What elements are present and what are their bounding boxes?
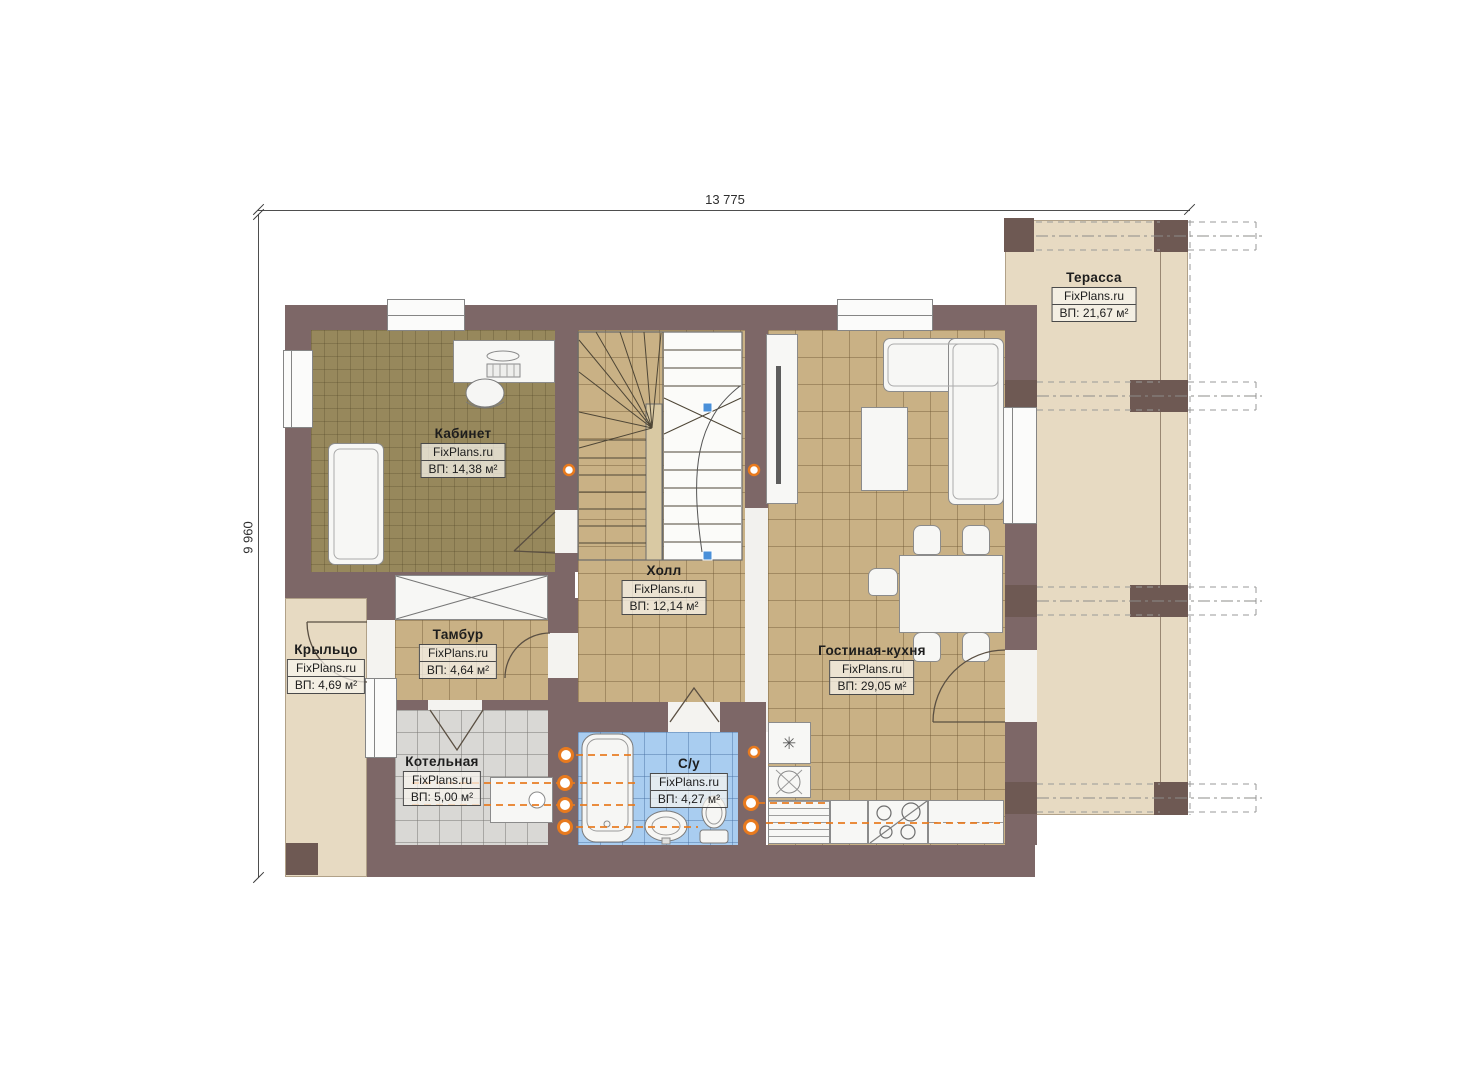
room-label-vestibule: Тамбур FixPlans.ruВП: 4,64 м² — [419, 627, 497, 679]
cooktop — [868, 800, 928, 844]
terrace-inner-line — [1160, 220, 1161, 815]
dining-table — [899, 555, 1003, 633]
window-living-east — [1003, 407, 1037, 524]
dining-chair — [962, 632, 990, 662]
room-name: Котельная — [403, 754, 481, 769]
terrace-column — [1130, 380, 1188, 412]
porch-column — [286, 843, 318, 875]
room-name: Кабинет — [421, 426, 506, 441]
room-area: ВП: 12,14 м² — [623, 597, 706, 614]
room-name: Тамбур — [419, 627, 497, 642]
brand-watermark: FixPlans.ru — [420, 645, 496, 661]
window-living-top — [837, 299, 933, 331]
window-office-top — [387, 299, 465, 331]
brand-watermark: FixPlans.ru — [651, 774, 727, 790]
door-gap-bathroom — [668, 702, 720, 732]
kitchen-counter — [928, 800, 1004, 844]
room-name: С/у — [650, 756, 728, 771]
room-area: ВП: 5,00 м² — [404, 788, 480, 805]
brand-watermark: FixPlans.ru — [1053, 288, 1136, 304]
brand-watermark: FixPlans.ru — [623, 581, 706, 597]
wall-hall-living — [745, 305, 768, 508]
room-area: ВП: 21,67 м² — [1053, 304, 1136, 321]
room-label-bathroom: С/у FixPlans.ruВП: 4,27 м² — [650, 756, 728, 808]
terrace-column — [1130, 585, 1188, 617]
sofa-right — [948, 338, 1004, 505]
room-area: ВП: 4,27 м² — [651, 790, 727, 807]
dining-chair — [868, 568, 898, 596]
terrace-column — [1154, 220, 1188, 252]
room-name: Терасса — [1052, 270, 1137, 285]
hall-floor — [578, 330, 745, 702]
brand-watermark: FixPlans.ru — [288, 660, 364, 676]
room-label-office: Кабинет FixPlans.ruВП: 14,38 м² — [421, 426, 506, 478]
wardrobe — [395, 575, 548, 620]
room-label-hall: Холл FixPlans.ruВП: 12,14 м² — [622, 563, 707, 615]
room-label-terrace: Терасса FixPlans.ruВП: 21,67 м² — [1052, 270, 1137, 322]
window-office-left — [283, 350, 313, 428]
window-porch — [365, 678, 397, 758]
terrace-column — [1004, 218, 1034, 252]
room-label-living-kitchen: Гостиная-кухня FixPlans.ruВП: 29,05 м² — [818, 643, 926, 695]
wall-bathroom-north — [548, 702, 766, 732]
room-label-boiler: Котельная FixPlans.ruВП: 5,00 м² — [403, 754, 481, 806]
door-gap-entrance — [367, 620, 395, 682]
room-name: Холл — [622, 563, 707, 578]
dining-chair — [913, 525, 941, 555]
brand-watermark: FixPlans.ru — [422, 444, 505, 460]
porch-floor — [285, 598, 367, 877]
room-area: ВП: 29,05 м² — [831, 677, 914, 694]
coffee-table — [861, 407, 908, 491]
dimension-line-left — [258, 214, 259, 878]
wall-bathroom-east — [738, 732, 766, 845]
boiler-unit — [490, 777, 553, 823]
kitchen-counter — [830, 800, 868, 844]
wall-bottom — [367, 845, 1035, 877]
dimension-width-label: 13 775 — [660, 192, 790, 207]
room-name: Крыльцо — [287, 642, 365, 657]
door-gap-vestibule-hall — [548, 633, 578, 678]
brand-watermark: FixPlans.ru — [831, 661, 914, 677]
door-gap-office — [555, 510, 578, 553]
fridge-snowflake-icon: ✳ — [782, 735, 796, 752]
room-label-porch: Крыльцо FixPlans.ruВП: 4,69 м² — [287, 642, 365, 694]
room-name: Гостиная-кухня — [818, 643, 926, 658]
kitchen-drawers — [768, 800, 830, 844]
terrace-column — [1005, 585, 1037, 617]
door-gap-terrace — [1005, 650, 1037, 722]
terrace-column — [1005, 782, 1037, 814]
room-area: ВП: 14,38 м² — [422, 460, 505, 477]
brand-watermark: FixPlans.ru — [404, 772, 480, 788]
office-sofa — [328, 443, 384, 565]
desk — [453, 340, 555, 383]
door-gap-vestibule-boiler — [428, 700, 482, 710]
kitchen-sink-unit — [768, 766, 811, 798]
dining-chair — [962, 525, 990, 555]
terrace-column — [1154, 782, 1188, 815]
room-area: ВП: 4,64 м² — [420, 661, 496, 678]
dimension-line-top — [258, 210, 1190, 211]
hall-living-passage — [745, 508, 768, 732]
dimension-height-label: 9 960 — [241, 508, 256, 568]
floor-plan: ✳ Кабинет FixPlans.ruВП: 14,38 м² Холл F… — [0, 0, 1474, 1080]
tv-stand — [766, 334, 798, 504]
room-area: ВП: 4,69 м² — [288, 676, 364, 693]
wall-left-upper — [285, 305, 311, 572]
